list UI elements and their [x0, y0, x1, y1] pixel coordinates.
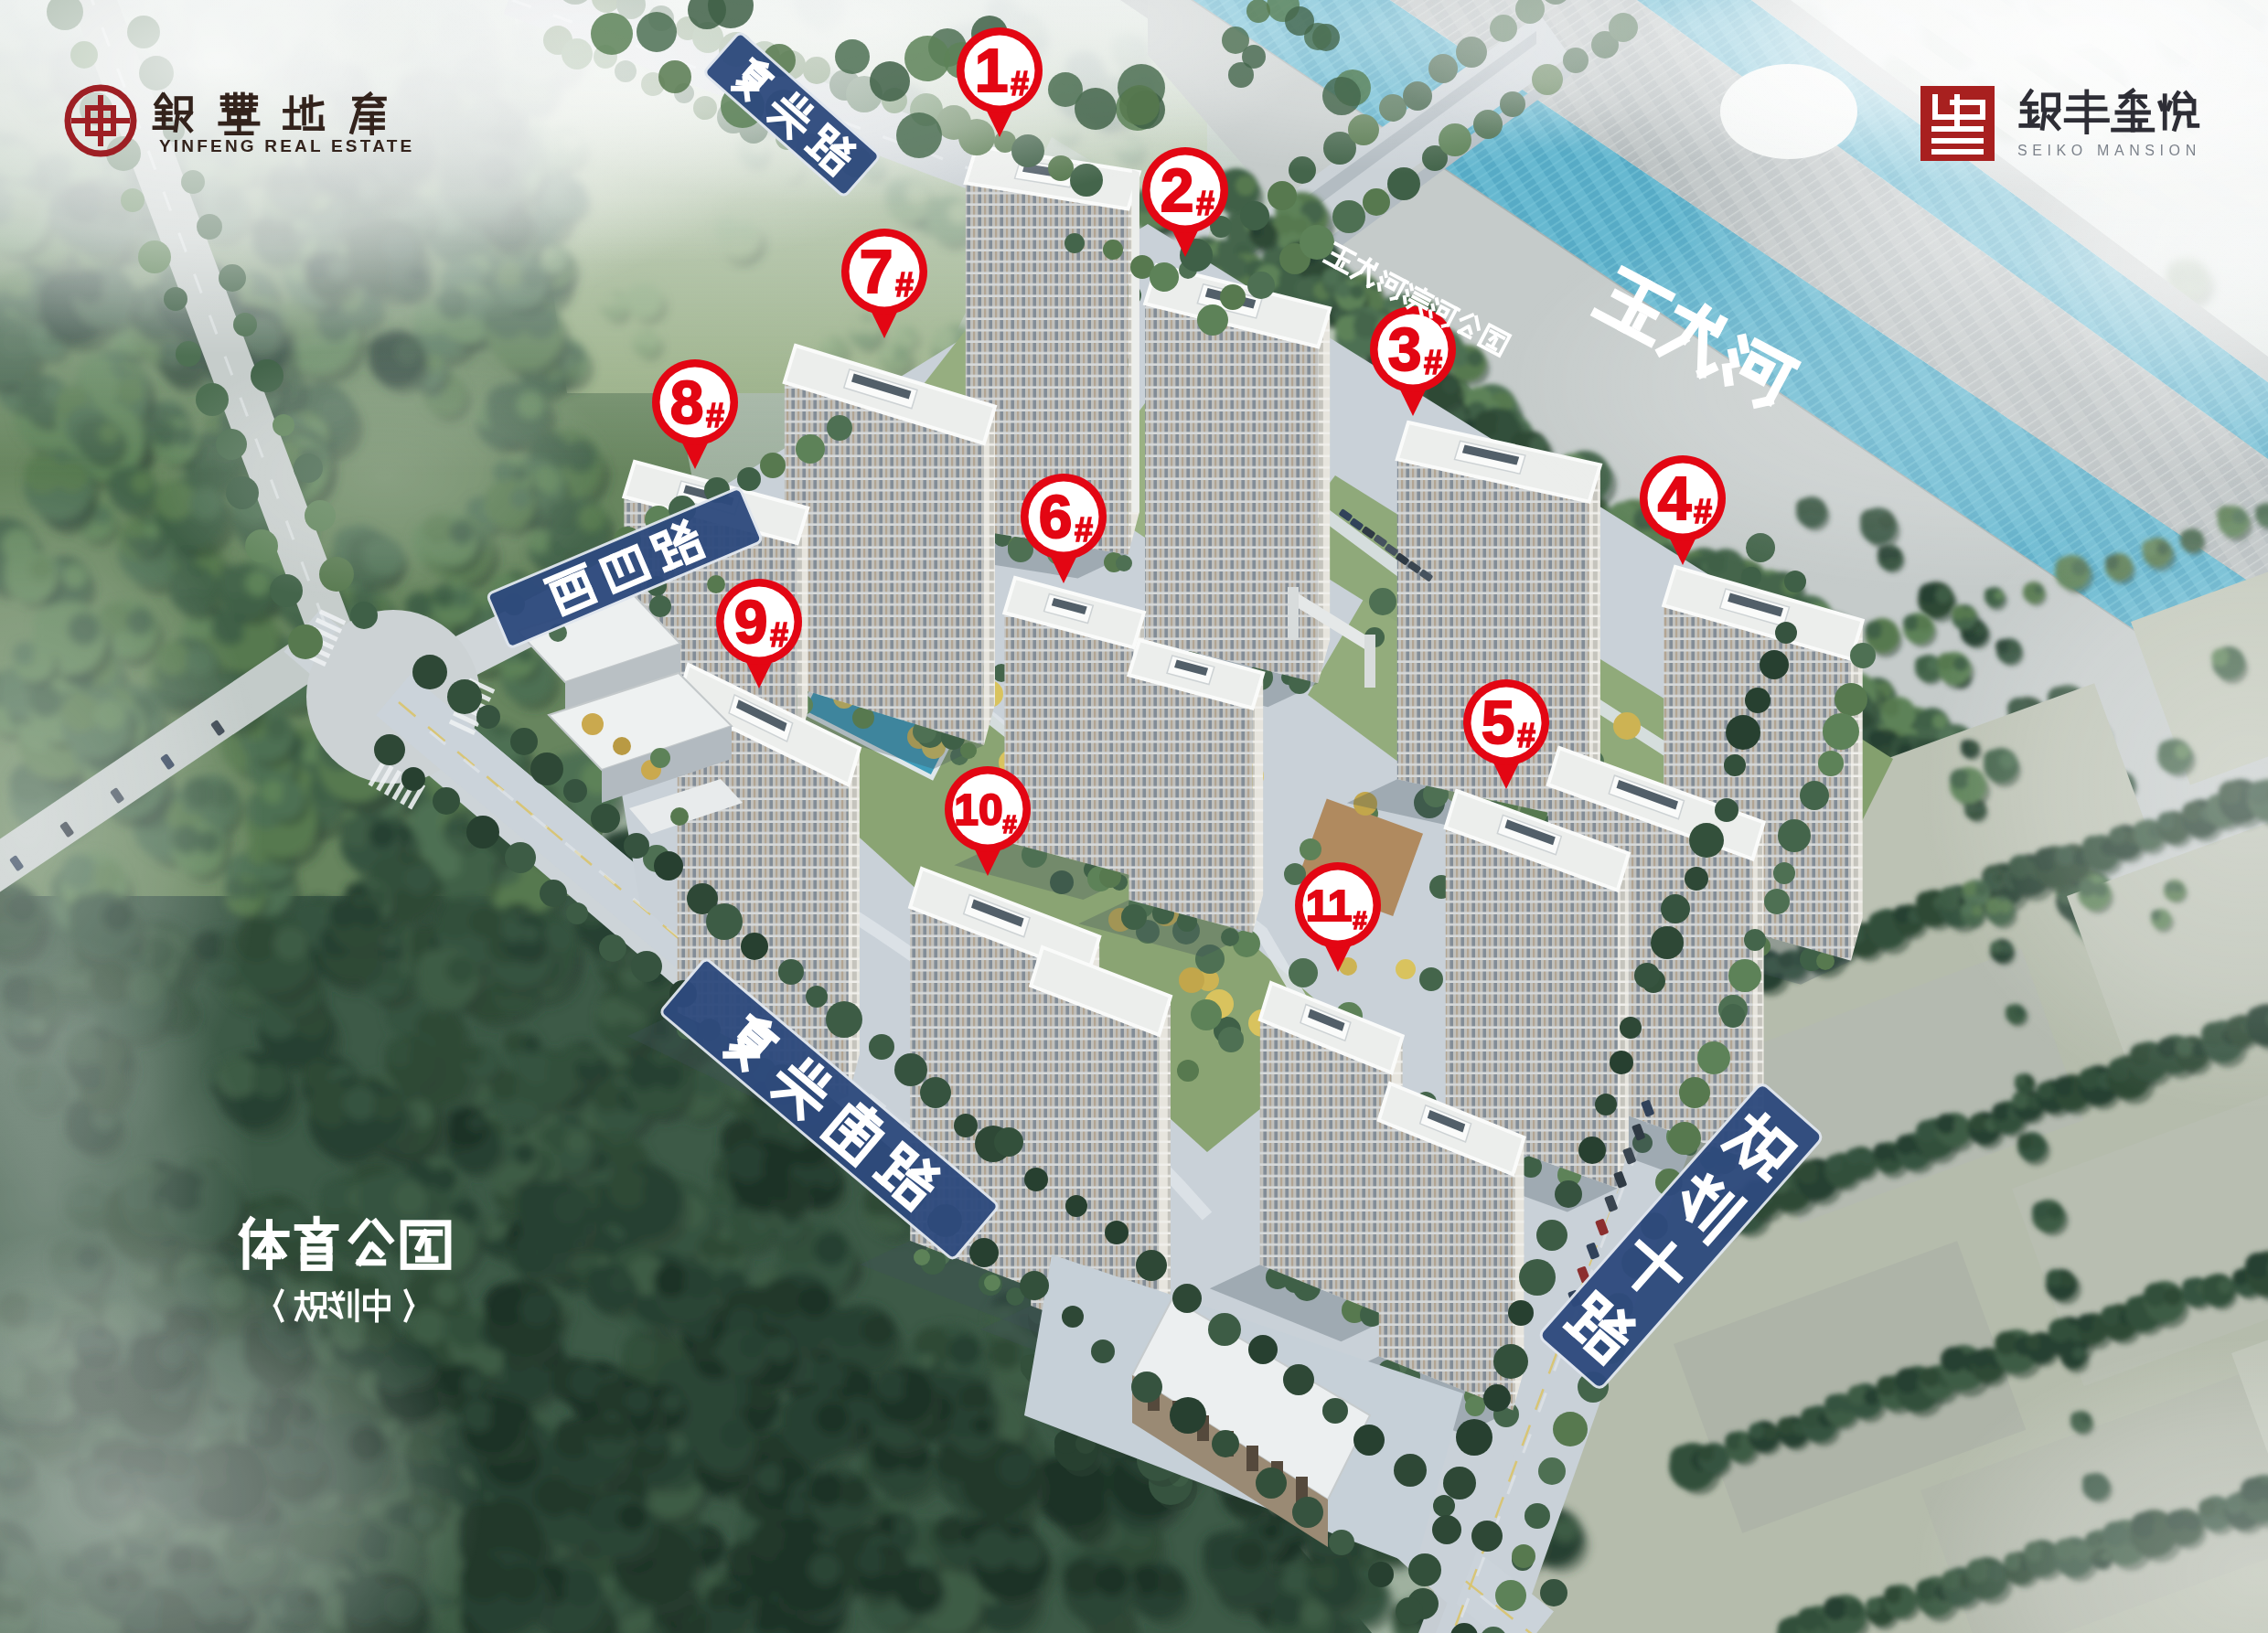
svg-text:#: #: [1353, 906, 1367, 934]
svg-text:6: 6: [1039, 483, 1073, 550]
svg-text:#: #: [1424, 344, 1442, 381]
svg-text:5: 5: [1482, 688, 1515, 756]
svg-text:7: 7: [860, 238, 893, 305]
svg-text:3: 3: [1388, 315, 1422, 383]
svg-text:#: #: [895, 266, 914, 304]
svg-text:#: #: [1011, 65, 1029, 102]
svg-text:11: 11: [1306, 881, 1353, 930]
svg-text:#: #: [1075, 511, 1093, 549]
svg-text:4: 4: [1658, 464, 1692, 532]
svg-text:#: #: [1002, 810, 1017, 838]
svg-text:8: 8: [670, 368, 704, 436]
svg-text:1: 1: [975, 37, 1009, 104]
svg-text:SEIKO MANSION: SEIKO MANSION: [2017, 143, 2201, 158]
svg-text:#: #: [1694, 493, 1712, 530]
svg-text:YINFENG REAL ESTATE: YINFENG REAL ESTATE: [159, 136, 414, 155]
svg-text:10: 10: [954, 785, 1002, 834]
svg-text:#: #: [1196, 185, 1214, 222]
svg-text:9: 9: [734, 588, 768, 656]
svg-text:#: #: [770, 616, 788, 654]
svg-text:2: 2: [1161, 156, 1194, 224]
svg-text:#: #: [706, 397, 724, 434]
svg-text:#: #: [1517, 717, 1535, 754]
